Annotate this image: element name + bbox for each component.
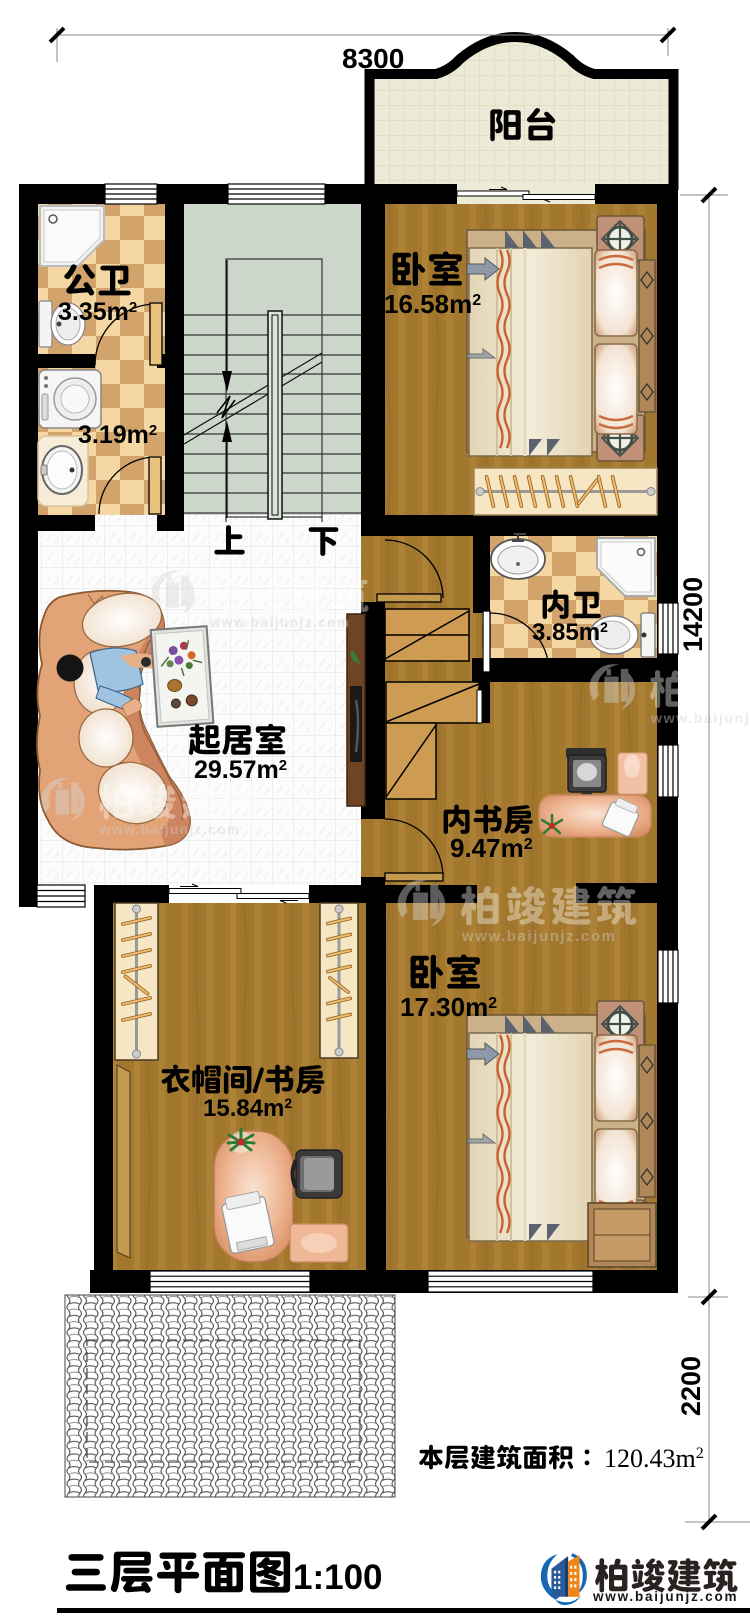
- svg-text:3.85m2: 3.85m2: [532, 619, 608, 646]
- svg-text:www.baijunjz.com: www.baijunjz.com: [99, 822, 241, 837]
- svg-text:16.58m2: 16.58m2: [384, 289, 481, 319]
- svg-text:3.35m2: 3.35m2: [58, 298, 137, 326]
- svg-text:9.47m2: 9.47m2: [450, 833, 533, 863]
- svg-text:8300: 8300: [342, 43, 404, 74]
- svg-text:www.baijunjz.com: www.baijunjz.com: [650, 711, 750, 727]
- svg-text:29.57m2: 29.57m2: [194, 756, 287, 784]
- svg-text:www.baijunjz.com: www.baijunjz.com: [461, 929, 617, 945]
- svg-text:www.baijunjz.com: www.baijunjz.com: [209, 615, 351, 630]
- svg-text:1:100: 1:100: [293, 1558, 383, 1597]
- svg-text:15.84m2: 15.84m2: [203, 1095, 292, 1122]
- svg-text:120.43m2: 120.43m2: [604, 1444, 704, 1473]
- svg-text:2200: 2200: [676, 1356, 706, 1416]
- svg-text:17.30m2: 17.30m2: [400, 992, 497, 1022]
- svg-text:www.baijunjz.com: www.baijunjz.com: [592, 1589, 738, 1604]
- svg-text:3.19m2: 3.19m2: [78, 421, 157, 449]
- svg-text:14200: 14200: [678, 577, 708, 652]
